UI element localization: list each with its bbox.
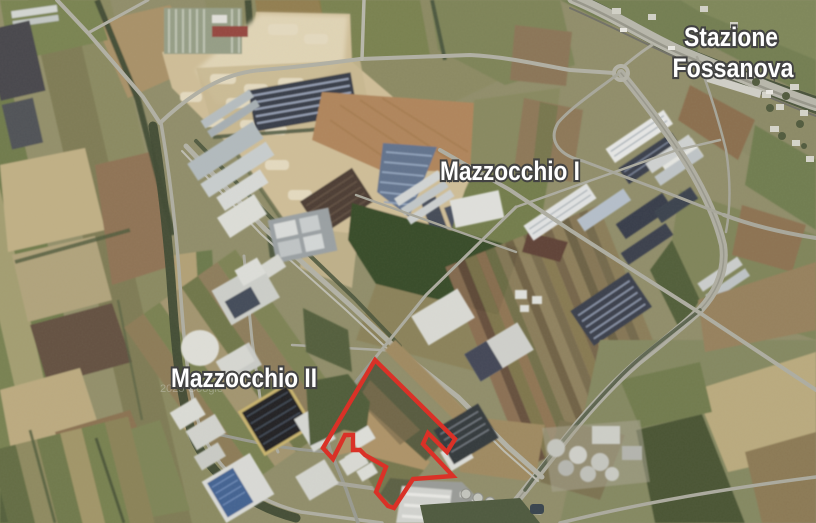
svg-text:Stazione: Stazione [684, 22, 778, 52]
svg-text:Mazzocchio II: Mazzocchio II [171, 363, 317, 393]
svg-text:Fossanova: Fossanova [673, 53, 795, 83]
svg-text:Mazzocchio I: Mazzocchio I [440, 156, 580, 186]
